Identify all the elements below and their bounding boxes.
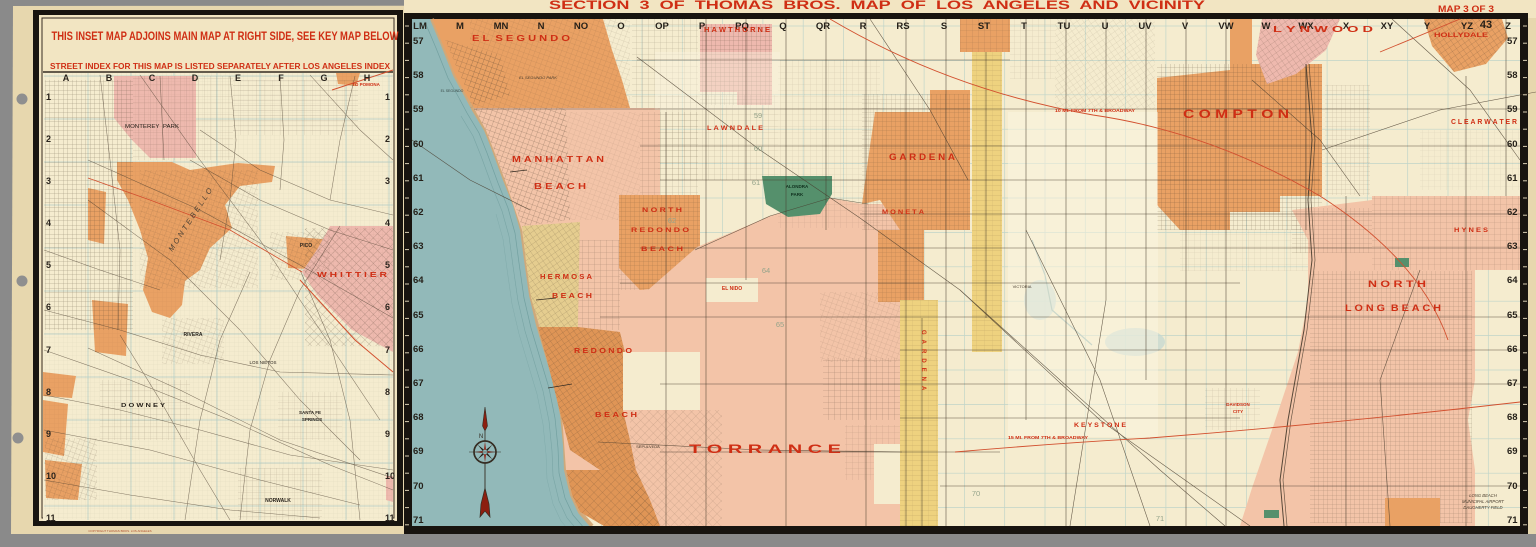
- svg-text:STREET INDEX FOR THIS MAP IS L: STREET INDEX FOR THIS MAP IS LISTED SEPA…: [50, 62, 391, 71]
- svg-text:3: 3: [385, 176, 390, 186]
- svg-text:PICO: PICO: [300, 243, 312, 249]
- svg-text:MAP 3 OF 3: MAP 3 OF 3: [1438, 4, 1494, 14]
- svg-text:MN: MN: [494, 21, 509, 32]
- svg-text:V: V: [1182, 21, 1189, 32]
- svg-text:T: T: [1021, 21, 1027, 32]
- svg-text:GARDENA: GARDENA: [920, 330, 926, 395]
- svg-text:CITY: CITY: [1233, 409, 1243, 414]
- svg-text:10: 10: [46, 471, 56, 481]
- svg-text:QR: QR: [816, 21, 830, 32]
- svg-text:F: F: [278, 73, 284, 83]
- svg-text:ALONDRA: ALONDRA: [786, 184, 809, 189]
- svg-text:T O R R A N C E: T O R R A N C E: [689, 442, 841, 456]
- svg-text:UV: UV: [1138, 21, 1152, 32]
- svg-text:S: S: [941, 21, 947, 32]
- svg-text:HOLLYDALE: HOLLYDALE: [1434, 32, 1489, 39]
- svg-text:N: N: [538, 21, 545, 32]
- svg-text:L O N G B E A C H: L O N G B E A C H: [1345, 303, 1441, 313]
- svg-text:6: 6: [385, 302, 390, 312]
- svg-text:71: 71: [1507, 515, 1518, 526]
- svg-text:64: 64: [413, 275, 424, 286]
- svg-text:N O R T H: N O R T H: [642, 207, 682, 214]
- svg-text:Q: Q: [779, 21, 786, 32]
- svg-text:DAVIDSON: DAVIDSON: [1226, 402, 1249, 407]
- svg-text:PARK: PARK: [791, 192, 804, 197]
- svg-text:66: 66: [413, 344, 424, 355]
- svg-text:RS: RS: [896, 21, 909, 32]
- svg-text:7: 7: [385, 345, 390, 355]
- svg-text:U: U: [1102, 21, 1109, 32]
- svg-text:11: 11: [46, 513, 56, 523]
- svg-text:R E D O N D O: R E D O N D O: [631, 227, 689, 234]
- svg-text:W H I T T I E R: W H I T T I E R: [317, 272, 387, 279]
- svg-text:E: E: [235, 73, 241, 83]
- svg-text:SANTA FE: SANTA FE: [299, 410, 321, 415]
- svg-text:H A W T H O R N E: H A W T H O R N E: [704, 27, 770, 34]
- svg-text:VICTORIA: VICTORIA: [1013, 284, 1032, 289]
- svg-text:A: A: [63, 73, 70, 83]
- svg-text:SEPULVEDA: SEPULVEDA: [636, 444, 660, 449]
- svg-text:1: 1: [385, 92, 390, 102]
- svg-text:LONG BEACH: LONG BEACH: [1469, 493, 1497, 498]
- svg-text:65: 65: [413, 310, 424, 321]
- svg-text:L Y N W O O D: L Y N W O O D: [1273, 24, 1373, 34]
- svg-text:10: 10: [385, 471, 395, 481]
- svg-text:O: O: [617, 21, 624, 32]
- svg-text:M O N E T A: M O N E T A: [882, 210, 925, 216]
- svg-text:57: 57: [1507, 36, 1518, 47]
- svg-text:66: 66: [1507, 344, 1518, 355]
- svg-text:9: 9: [385, 429, 390, 439]
- svg-text:4: 4: [385, 218, 390, 228]
- svg-text:60: 60: [413, 139, 424, 150]
- svg-text:62: 62: [668, 216, 676, 225]
- svg-text:60: 60: [754, 144, 762, 153]
- svg-text:62: 62: [413, 207, 424, 218]
- svg-text:4: 4: [46, 218, 51, 228]
- svg-text:71: 71: [1156, 514, 1164, 523]
- svg-text:THIS INSET MAP ADJOINS MAIN MA: THIS INSET MAP ADJOINS MAIN MAP AT RIGHT…: [52, 31, 399, 43]
- svg-text:NO: NO: [574, 21, 588, 32]
- svg-text:5: 5: [46, 260, 51, 270]
- svg-text:LOS NIETOS: LOS NIETOS: [250, 360, 277, 365]
- svg-text:43: 43: [1480, 19, 1492, 31]
- svg-text:9: 9: [46, 429, 51, 439]
- svg-text:Y: Y: [1424, 21, 1431, 32]
- svg-text:LM: LM: [413, 21, 427, 32]
- svg-text:69: 69: [1507, 446, 1518, 457]
- svg-text:70: 70: [1507, 481, 1518, 492]
- svg-text:61: 61: [752, 178, 760, 187]
- svg-text:EL SEGUNDO PARK: EL SEGUNDO PARK: [519, 75, 557, 80]
- svg-text:62: 62: [1507, 207, 1518, 218]
- svg-text:VW: VW: [1218, 21, 1233, 32]
- svg-text:MUNICIPAL AIRPORT: MUNICIPAL AIRPORT: [1462, 499, 1504, 504]
- svg-text:65: 65: [1507, 310, 1518, 321]
- svg-text:68: 68: [1507, 412, 1518, 423]
- svg-text:70: 70: [972, 489, 980, 498]
- svg-text:58: 58: [413, 70, 424, 81]
- svg-text:TU: TU: [1058, 21, 1071, 32]
- svg-text:64: 64: [1507, 275, 1518, 286]
- svg-text:70: 70: [413, 481, 424, 492]
- svg-text:3: 3: [46, 176, 51, 186]
- svg-text:C O M P T O N: C O M P T O N: [1183, 109, 1289, 121]
- svg-text:58: 58: [1507, 70, 1518, 81]
- svg-text:DAUGHERTY FIELD: DAUGHERTY FIELD: [1463, 505, 1502, 510]
- svg-text:69: 69: [413, 446, 424, 457]
- svg-text:MONTEREY PARK: MONTEREY PARK: [125, 124, 180, 130]
- svg-text:SPRINGS: SPRINGS: [302, 417, 322, 422]
- svg-text:6: 6: [46, 302, 51, 312]
- svg-text:57: 57: [413, 36, 424, 47]
- svg-text:K E Y S T O N E: K E Y S T O N E: [1074, 423, 1126, 429]
- svg-text:63: 63: [413, 241, 424, 252]
- svg-text:Z: Z: [1505, 21, 1511, 32]
- svg-text:B: B: [106, 73, 113, 83]
- svg-text:H E R M O S A: H E R M O S A: [540, 274, 592, 281]
- svg-text:N: N: [479, 434, 483, 440]
- svg-text:59: 59: [754, 111, 762, 120]
- svg-text:61: 61: [413, 173, 424, 184]
- svg-text:2: 2: [46, 134, 51, 144]
- svg-text:EL NIDO: EL NIDO: [722, 286, 742, 292]
- svg-text:15 MI. FROM 7TH & BROADWAY: 15 MI. FROM 7TH & BROADWAY: [1008, 435, 1088, 440]
- svg-text:B E A C H: B E A C H: [595, 410, 637, 419]
- svg-text:11: 11: [385, 513, 395, 523]
- svg-text:7: 7: [46, 345, 51, 355]
- svg-text:8: 8: [46, 387, 51, 397]
- svg-text:63: 63: [1507, 241, 1518, 252]
- svg-text:COPYRIGHT THOMAS BROS. LOS ANG: COPYRIGHT THOMAS BROS. LOS ANGELES: [88, 529, 151, 533]
- svg-text:67: 67: [1507, 378, 1518, 389]
- svg-text:R: R: [860, 21, 867, 32]
- svg-text:D O W N E Y: D O W N E Y: [121, 403, 165, 409]
- svg-text:OP: OP: [655, 21, 669, 32]
- svg-text:YZ: YZ: [1461, 21, 1473, 32]
- svg-text:B E A C H: B E A C H: [641, 246, 683, 253]
- svg-text:G: G: [320, 73, 327, 83]
- svg-text:1: 1: [46, 92, 51, 102]
- svg-text:NORWALK: NORWALK: [265, 498, 291, 504]
- svg-text:RIVERA: RIVERA: [184, 332, 203, 338]
- svg-text:C: C: [149, 73, 156, 83]
- svg-text:59: 59: [1507, 104, 1518, 115]
- svg-text:5: 5: [385, 260, 390, 270]
- svg-text:B E A C H: B E A C H: [534, 181, 586, 191]
- svg-text:C L E A R W A T E R: C L E A R W A T E R: [1451, 119, 1517, 126]
- svg-text:D: D: [192, 73, 199, 83]
- svg-text:59: 59: [413, 104, 424, 115]
- svg-text:M: M: [456, 21, 464, 32]
- svg-text:R E D O N D O: R E D O N D O: [574, 346, 632, 355]
- svg-text:W: W: [1262, 21, 1271, 32]
- svg-text:L A W N D A L E: L A W N D A L E: [707, 125, 764, 132]
- svg-text:N O R T H: N O R T H: [1368, 279, 1426, 289]
- svg-text:TO POMONA: TO POMONA: [352, 82, 380, 87]
- svg-text:67: 67: [413, 378, 424, 389]
- svg-text:71: 71: [413, 515, 424, 526]
- svg-text:68: 68: [413, 412, 424, 423]
- svg-text:XY: XY: [1381, 21, 1394, 32]
- svg-text:60: 60: [1507, 139, 1518, 150]
- svg-text:ST: ST: [978, 21, 990, 32]
- svg-text:G A R D E N A: G A R D E N A: [889, 152, 956, 162]
- svg-text:B E A C H: B E A C H: [552, 293, 592, 300]
- svg-text:EL SEGUNDO: EL SEGUNDO: [441, 89, 464, 93]
- svg-text:2: 2: [385, 134, 390, 144]
- svg-text:SECTION 3 OF THOMAS BROS.: SECTION 3 OF THOMAS BROS. MAP OF LOS ANG…: [549, 0, 1205, 12]
- svg-text:65: 65: [776, 320, 784, 329]
- svg-text:8: 8: [385, 387, 390, 397]
- svg-text:10 MI. FROM 7TH & BROADWAY: 10 MI. FROM 7TH & BROADWAY: [1055, 108, 1135, 113]
- svg-text:E L S E G U N D O: E L S E G U N D O: [472, 33, 571, 43]
- svg-text:61: 61: [1507, 173, 1518, 184]
- svg-text:64: 64: [762, 266, 770, 275]
- svg-text:H Y N E S: H Y N E S: [1454, 227, 1489, 234]
- svg-text:M A N H A T T A N: M A N H A T T A N: [512, 154, 604, 164]
